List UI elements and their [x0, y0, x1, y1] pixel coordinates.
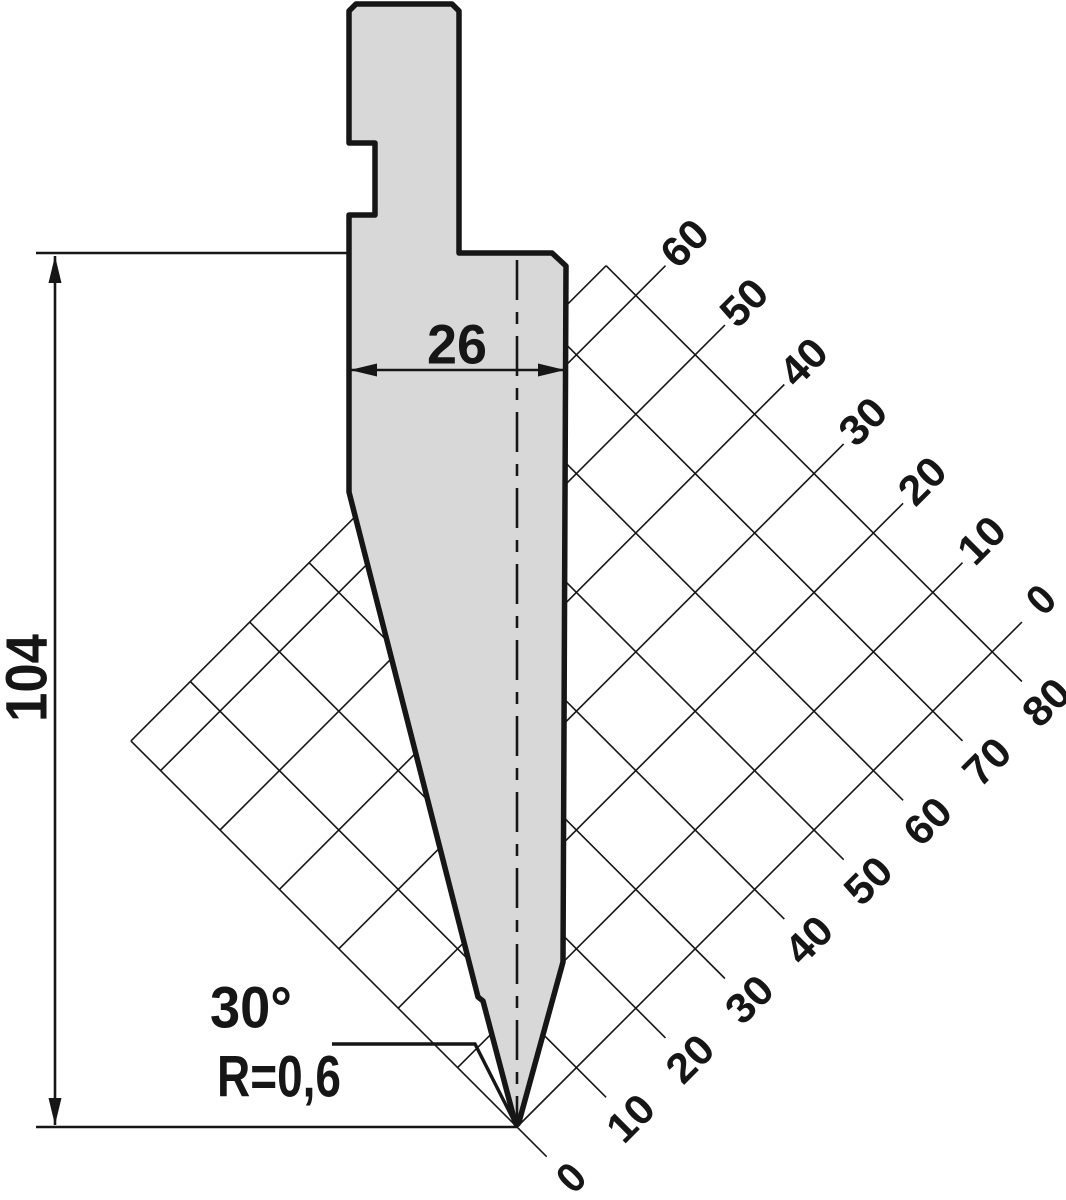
punch-drawing-svg: 6050403020100010203040506070802610430°R=… — [0, 0, 1066, 1200]
grid-axis-label-lower-20: 20 — [656, 1025, 723, 1092]
grid-axis-labels: 605040302010001020304050607080 — [547, 210, 1066, 1200]
grid-axis-label-upper-40: 40 — [770, 328, 837, 395]
grid-axis-label-upper-0: 0 — [1017, 575, 1066, 624]
punch-outline — [349, 4, 566, 1125]
grid-axis-label-upper-30: 30 — [829, 388, 896, 455]
radius-leader-line — [332, 1044, 516, 1125]
height-arrow-top — [49, 256, 62, 283]
grid-axis-label-upper-10: 10 — [948, 507, 1015, 574]
grid-axis-label-lower-10: 10 — [597, 1085, 664, 1152]
grid-axis-label-lower-70: 70 — [953, 728, 1020, 795]
height-dimension-value: 104 — [0, 634, 60, 722]
height-arrow-bottom — [49, 1098, 62, 1125]
grid-axis-label-lower-30: 30 — [716, 966, 783, 1033]
grid-axis-label-lower-50: 50 — [834, 847, 901, 914]
grid-axis-label-upper-60: 60 — [651, 210, 718, 277]
grid-line-upper-0 — [517, 622, 1022, 1127]
grid-axis-label-lower-80: 80 — [1013, 669, 1066, 736]
grid-axis-label-lower-60: 60 — [894, 788, 961, 855]
width-dimension-value: 26 — [427, 313, 487, 376]
technical-drawing-canvas: 6050403020100010203040506070802610430°R=… — [0, 0, 1066, 1200]
grid-axis-label-upper-50: 50 — [710, 269, 777, 336]
grid-axis-label-lower-0: 0 — [547, 1153, 596, 1200]
angle-value: 30° — [210, 976, 292, 1041]
radius-value: R=0,6 — [217, 1045, 341, 1110]
grid-axis-label-lower-40: 40 — [775, 906, 842, 973]
grid-axis-label-upper-20: 20 — [889, 447, 956, 514]
